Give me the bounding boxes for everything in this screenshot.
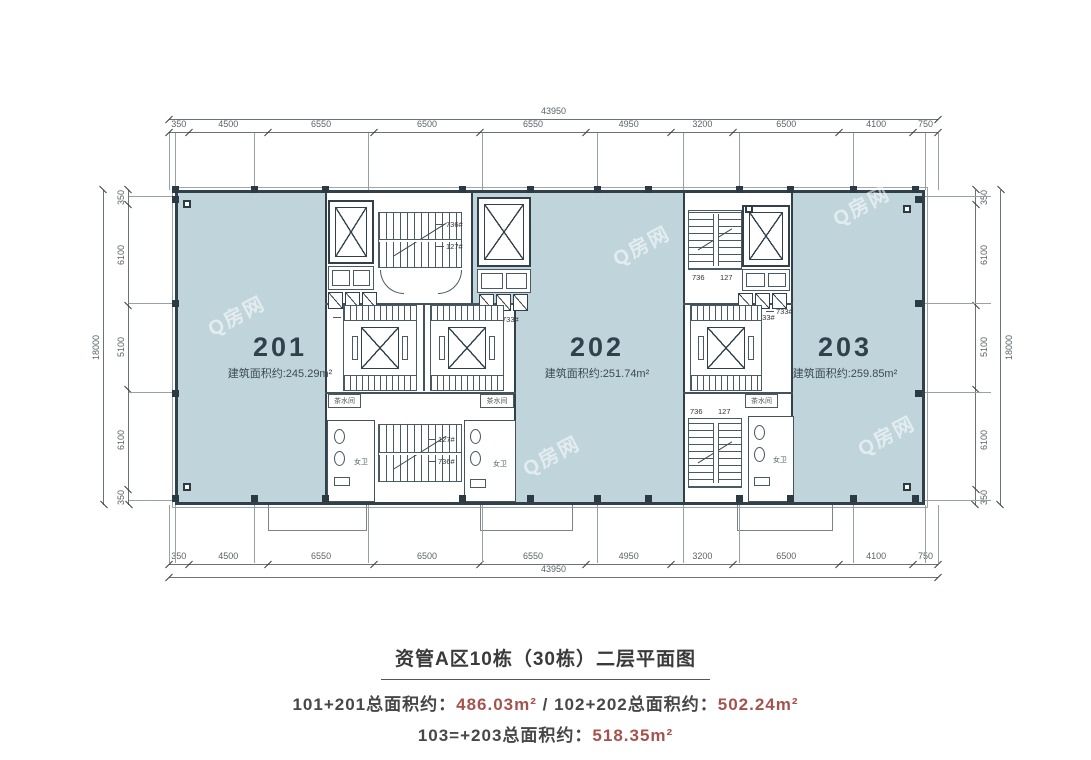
restroom-label: 女卫 [493, 461, 507, 468]
column-marker-hollow [903, 205, 911, 213]
stair-number-label: 127# [436, 243, 463, 251]
sink-fixture [754, 477, 770, 486]
grid-extension-line [368, 133, 369, 190]
party-wall [423, 305, 425, 391]
stair-number-label: 736 [692, 274, 705, 282]
column-marker [594, 186, 601, 193]
column-marker-hollow [745, 205, 753, 213]
column-marker-hollow [183, 200, 191, 208]
column-marker [915, 300, 922, 307]
column-marker [251, 186, 258, 193]
column-marker [459, 495, 466, 502]
restroom: 女卫 [464, 420, 516, 502]
dim-chain-left-segments: 350 6100 5100 6100 350 [113, 190, 129, 505]
summary-separator: / [537, 695, 554, 714]
column-marker [172, 390, 179, 397]
dim-label: 6500 [417, 120, 437, 132]
dim-label: 43950 [541, 565, 566, 577]
toilet-fixture [334, 451, 345, 466]
grid-extension-line [175, 505, 176, 563]
stair-number-label: 736# [428, 458, 455, 466]
column-marker [915, 390, 922, 397]
door-slot [746, 273, 765, 287]
elevator-x-symbol [749, 212, 783, 260]
column-marker [915, 196, 922, 203]
entrance-canopy [268, 505, 367, 531]
grid-extension-line [597, 133, 598, 190]
grid-extension-line [169, 505, 170, 563]
grid-extension-line [175, 133, 176, 190]
restroom: 女卫 [748, 416, 794, 502]
dim-label: 350 [171, 120, 186, 132]
dim-label: 5100 [979, 337, 989, 357]
toilet-fixture [754, 447, 765, 462]
summary-label: 102+202总面积约： [554, 695, 718, 714]
summary-label: 103=+203总面积约： [418, 726, 593, 745]
elevator-doors [328, 266, 374, 290]
dim-chain-right-segments: 350 6100 5100 6100 350 [975, 190, 991, 505]
column-marker [172, 196, 179, 203]
grid-extension-line [925, 500, 991, 501]
shaft-slot [698, 336, 704, 360]
core-stair-elevator-assembly [690, 305, 762, 391]
stair-number-label: 736# [436, 221, 463, 229]
elevator-shaft [742, 205, 790, 267]
grid-extension-line [925, 196, 991, 197]
column-marker [850, 495, 857, 502]
area-summary-line-1: 101+201总面积约：486.03m² / 102+202总面积约：502.2… [0, 690, 1091, 715]
column-marker [459, 186, 466, 193]
column-marker [912, 495, 919, 502]
pantry-room: 茶水间 [328, 394, 361, 408]
grid-extension-line [482, 133, 483, 190]
grid-extension-line [129, 303, 175, 304]
dim-label: 6550 [523, 120, 543, 132]
dim-label: 350 [116, 490, 126, 505]
floorplan-page: 43950 350 4500 6550 6500 6550 4950 3200 … [0, 0, 1091, 760]
summary-value: 486.03m² [456, 695, 537, 714]
dim-chain-bottom-total: 43950 [169, 562, 938, 578]
elevator-x-symbol [448, 327, 486, 369]
caption-block: 资管A区10栋（30栋）二层平面图 101+201总面积约：486.03m² /… [0, 644, 1091, 746]
dim-label: 350 [979, 190, 989, 205]
column-marker [172, 495, 179, 502]
staircase [688, 418, 742, 488]
grid-extension-line [482, 505, 483, 563]
dim-label: 18000 [1004, 335, 1014, 360]
staircase [378, 424, 462, 482]
grid-extension-line [739, 505, 740, 563]
column-marker [787, 495, 794, 502]
stair-treads [431, 306, 503, 321]
column-marker [527, 495, 534, 502]
door-slot [481, 273, 503, 289]
dim-label: 5100 [116, 337, 126, 357]
dim-chain-right-total: 18000 [1000, 190, 1016, 505]
grid-extension-line [925, 133, 926, 190]
toilet-fixture [754, 425, 765, 440]
column-marker [322, 186, 329, 193]
dim-label: 4950 [619, 120, 639, 132]
elevator-x-symbol [484, 204, 524, 260]
restroom-label: 女卫 [773, 457, 787, 464]
dim-label: 6500 [776, 120, 796, 132]
column-marker [322, 495, 329, 502]
shaft-slot [402, 336, 408, 360]
unit-area: 建筑面积约:245.29m² [200, 365, 360, 381]
door-slot [506, 273, 528, 289]
column-marker-hollow [183, 483, 191, 491]
grid-extension-line [938, 505, 939, 563]
dim-label: 350 [979, 490, 989, 505]
elevator-shaft [477, 197, 531, 267]
column-marker [251, 495, 258, 502]
grid-extension-line [853, 505, 854, 563]
pantry-label: 茶水间 [487, 398, 508, 405]
summary-value: 502.24m² [718, 695, 799, 714]
column-marker [172, 186, 179, 193]
restroom-label: 女卫 [354, 459, 368, 466]
dim-label: 4500 [218, 120, 238, 132]
dim-label: 4100 [866, 120, 886, 132]
core-stair-elevator-assembly [430, 305, 504, 391]
dim-label: 6100 [116, 245, 126, 265]
shaft-slot [748, 336, 754, 360]
grid-extension-line [169, 133, 170, 190]
pantry-room: 茶水间 [745, 394, 778, 408]
shaft-slot [439, 336, 445, 360]
vent-cell [328, 292, 343, 309]
grid-extension-line [129, 500, 175, 501]
column-marker [645, 495, 652, 502]
stair-treads [431, 375, 503, 390]
column-marker [912, 186, 919, 193]
stair-treads [691, 375, 761, 390]
column-marker-hollow [903, 483, 911, 491]
unit-number: 201 [200, 333, 360, 363]
unit-area: 建筑面积约:251.74m² [517, 365, 677, 381]
sink-fixture [470, 479, 486, 488]
dim-label: 6100 [116, 430, 126, 450]
grid-extension-line [129, 196, 175, 197]
dim-label: 3200 [692, 120, 712, 132]
pantry-room: 茶水间 [480, 394, 514, 408]
stair-number-label: 127 [718, 408, 731, 416]
dim-label: 6550 [311, 120, 331, 132]
grid-extension-line [683, 133, 684, 190]
summary-value: 518.35m² [592, 726, 673, 745]
area-summary-line-2: 103=+203总面积约：518.35m² [0, 721, 1091, 746]
column-marker [736, 495, 743, 502]
stair-treads [344, 306, 416, 321]
toilet-fixture [334, 429, 345, 444]
dim-label: 350 [116, 190, 126, 205]
stair-number-label: 127 [720, 274, 733, 282]
staircase [688, 210, 742, 270]
plan-title: 资管A区10栋（30栋）二层平面图 [381, 644, 710, 680]
grid-extension-line [254, 505, 255, 563]
column-marker [645, 186, 652, 193]
dim-label: 18000 [91, 335, 101, 360]
elevator-doors [477, 269, 531, 293]
grid-extension-line [938, 133, 939, 190]
grid-extension-line [129, 392, 175, 393]
elevator-x-symbol [707, 327, 745, 369]
vent-cell [513, 294, 528, 311]
sink-fixture [334, 477, 350, 486]
pantry-label: 茶水间 [334, 398, 355, 405]
grid-extension-line [597, 505, 598, 563]
grid-extension-line [925, 392, 991, 393]
summary-label: 101+201总面积约： [292, 695, 456, 714]
grid-extension-line [683, 505, 684, 563]
restroom: 女卫 [327, 420, 375, 502]
pantry-label: 茶水间 [751, 398, 772, 405]
stair-number-label: 736 [690, 408, 703, 416]
dim-chain-left-total: 18000 [88, 190, 104, 505]
elevator-doors [742, 269, 790, 291]
grid-extension-line [368, 505, 369, 563]
dim-label: 750 [918, 120, 933, 132]
unit-203-label: 203 建筑面积约:259.85m² [765, 333, 925, 381]
toilet-fixture [470, 451, 481, 466]
grid-extension-line [925, 505, 926, 563]
shaft-slot [489, 336, 495, 360]
column-marker [736, 186, 743, 193]
unit-202-label: 202 建筑面积约:251.74m² [517, 333, 677, 381]
column-marker [787, 186, 794, 193]
vent-label: 733# [766, 308, 793, 316]
grid-extension-line [254, 133, 255, 190]
column-marker [172, 300, 179, 307]
door-slot [353, 270, 371, 286]
unit-area: 建筑面积约:259.85m² [765, 365, 925, 381]
grid-extension-line [739, 133, 740, 190]
column-marker [594, 495, 601, 502]
dim-label: 6100 [979, 430, 989, 450]
unit-number: 202 [517, 333, 677, 363]
dim-chain-top-segments: 350 4500 6550 6500 6550 4950 3200 6500 4… [169, 117, 938, 133]
toilet-fixture [470, 429, 481, 444]
stair-number-label: 127# [428, 436, 455, 444]
elevator-x-symbol [361, 327, 399, 369]
unit-number: 203 [765, 333, 925, 363]
grid-extension-line [925, 303, 991, 304]
stair-treads [691, 306, 761, 321]
elevator-shaft [328, 200, 374, 264]
entrance-canopy [737, 505, 833, 531]
grid-extension-line [853, 133, 854, 190]
entrance-canopy [480, 505, 573, 531]
column-marker [527, 186, 534, 193]
unit-201-label: 201 建筑面积约:245.29m² [200, 333, 360, 381]
door-slot [768, 273, 787, 287]
dim-label: 6100 [979, 245, 989, 265]
door-slot [332, 270, 350, 286]
elevator-x-symbol [335, 207, 367, 257]
column-marker [850, 186, 857, 193]
